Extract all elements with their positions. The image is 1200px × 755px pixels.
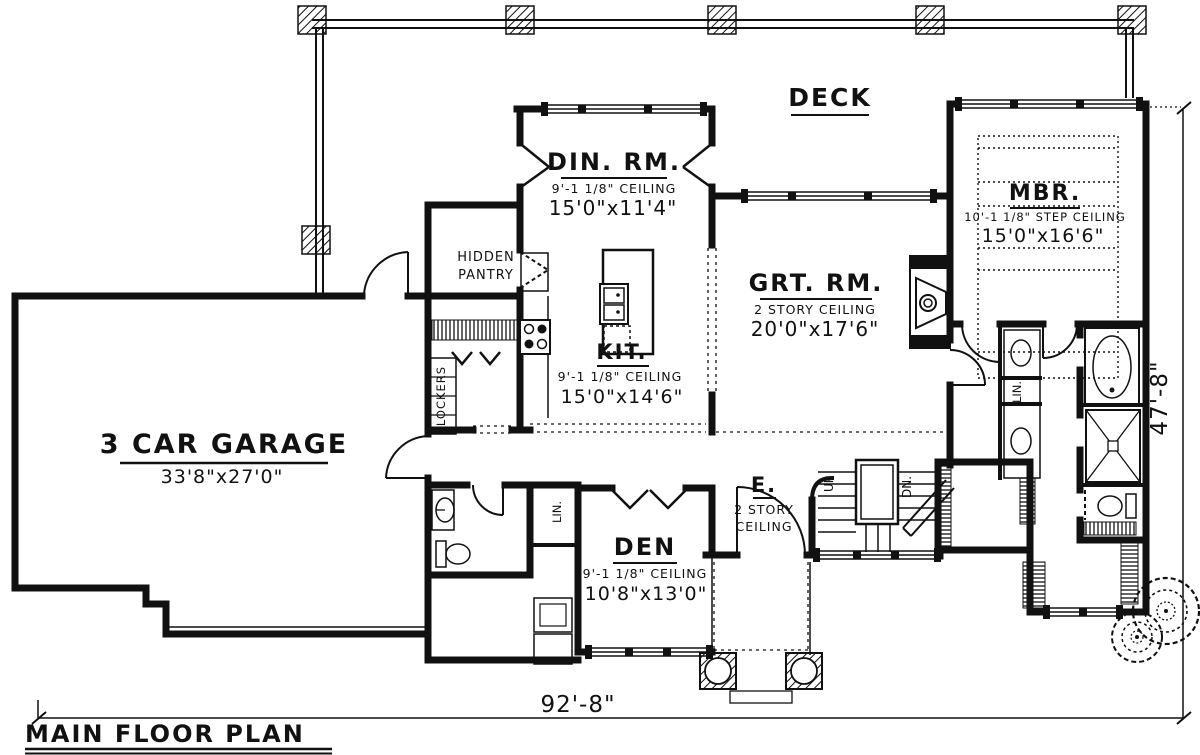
master-name: MBR. [1009, 181, 1081, 206]
dim-width-label: 92'-8" [540, 692, 615, 718]
den-name: DEN [614, 533, 676, 561]
tree-small [1112, 612, 1162, 662]
stairs-up-label: UP [822, 476, 836, 492]
linen-hall-label: LIN. [550, 501, 564, 523]
garage-name: 3 CAR GARAGE [100, 429, 348, 460]
floor-plan-drawing: 92'-8" 47'-8" DECK DIN. RM. 9'-1 1/8" CE… [0, 0, 1200, 755]
dining-ceiling: 9'-1 1/8" CEILING [552, 181, 677, 196]
stairs-down-label: DN. [900, 476, 914, 498]
den-size: 10'8"x13'0" [585, 583, 708, 605]
entry-name: E. [751, 473, 777, 497]
kitchen-name: KIT. [596, 340, 647, 364]
title-text: MAIN FLOOR PLAN [25, 720, 305, 748]
fireplace [910, 256, 950, 348]
staircase [818, 460, 954, 552]
dining-size: 15'0"x11'4" [549, 196, 678, 220]
dining-name: DIN. RM. [547, 148, 681, 176]
drawing-title: MAIN FLOOR PLAN [25, 720, 332, 754]
linen-bath-label: LIN. [1010, 381, 1024, 403]
deck-railing [312, 20, 1134, 296]
great-name: GRT. RM. [749, 269, 884, 297]
front-porch [700, 653, 822, 703]
lockers-label: LOCKERS [434, 366, 448, 426]
entry-ceiling-line1: 2 STORY [734, 502, 794, 517]
den-ceiling: 9'-1 1/8" CEILING [583, 566, 708, 581]
pantry-label-line2: PANTRY [458, 268, 514, 283]
floor-plan-page: 92'-8" 47'-8" DECK DIN. RM. 9'-1 1/8" CE… [0, 0, 1200, 755]
garage-size: 33'8"x27'0" [161, 466, 284, 488]
master-size: 15'0"x16'6" [982, 225, 1105, 247]
great-ceiling: 2 STORY CEILING [754, 302, 876, 317]
kitchen-ceiling: 9'-1 1/8" CEILING [558, 369, 683, 384]
entry-ceiling-line2: CEILING [736, 519, 793, 534]
dim-depth-label: 47'-8" [1147, 360, 1173, 435]
great-size: 20'0"x17'6" [751, 317, 880, 341]
room-labels: DECK DIN. RM. 9'-1 1/8" CEILING 15'0"x11… [100, 83, 1126, 605]
deck-label: DECK [788, 83, 872, 112]
pantry-label-line1: HIDDEN [457, 250, 515, 265]
kitchen-size: 15'0"x14'6" [561, 386, 684, 408]
master-ceiling: 10'-1 1/8" STEP CEILING [964, 210, 1126, 224]
